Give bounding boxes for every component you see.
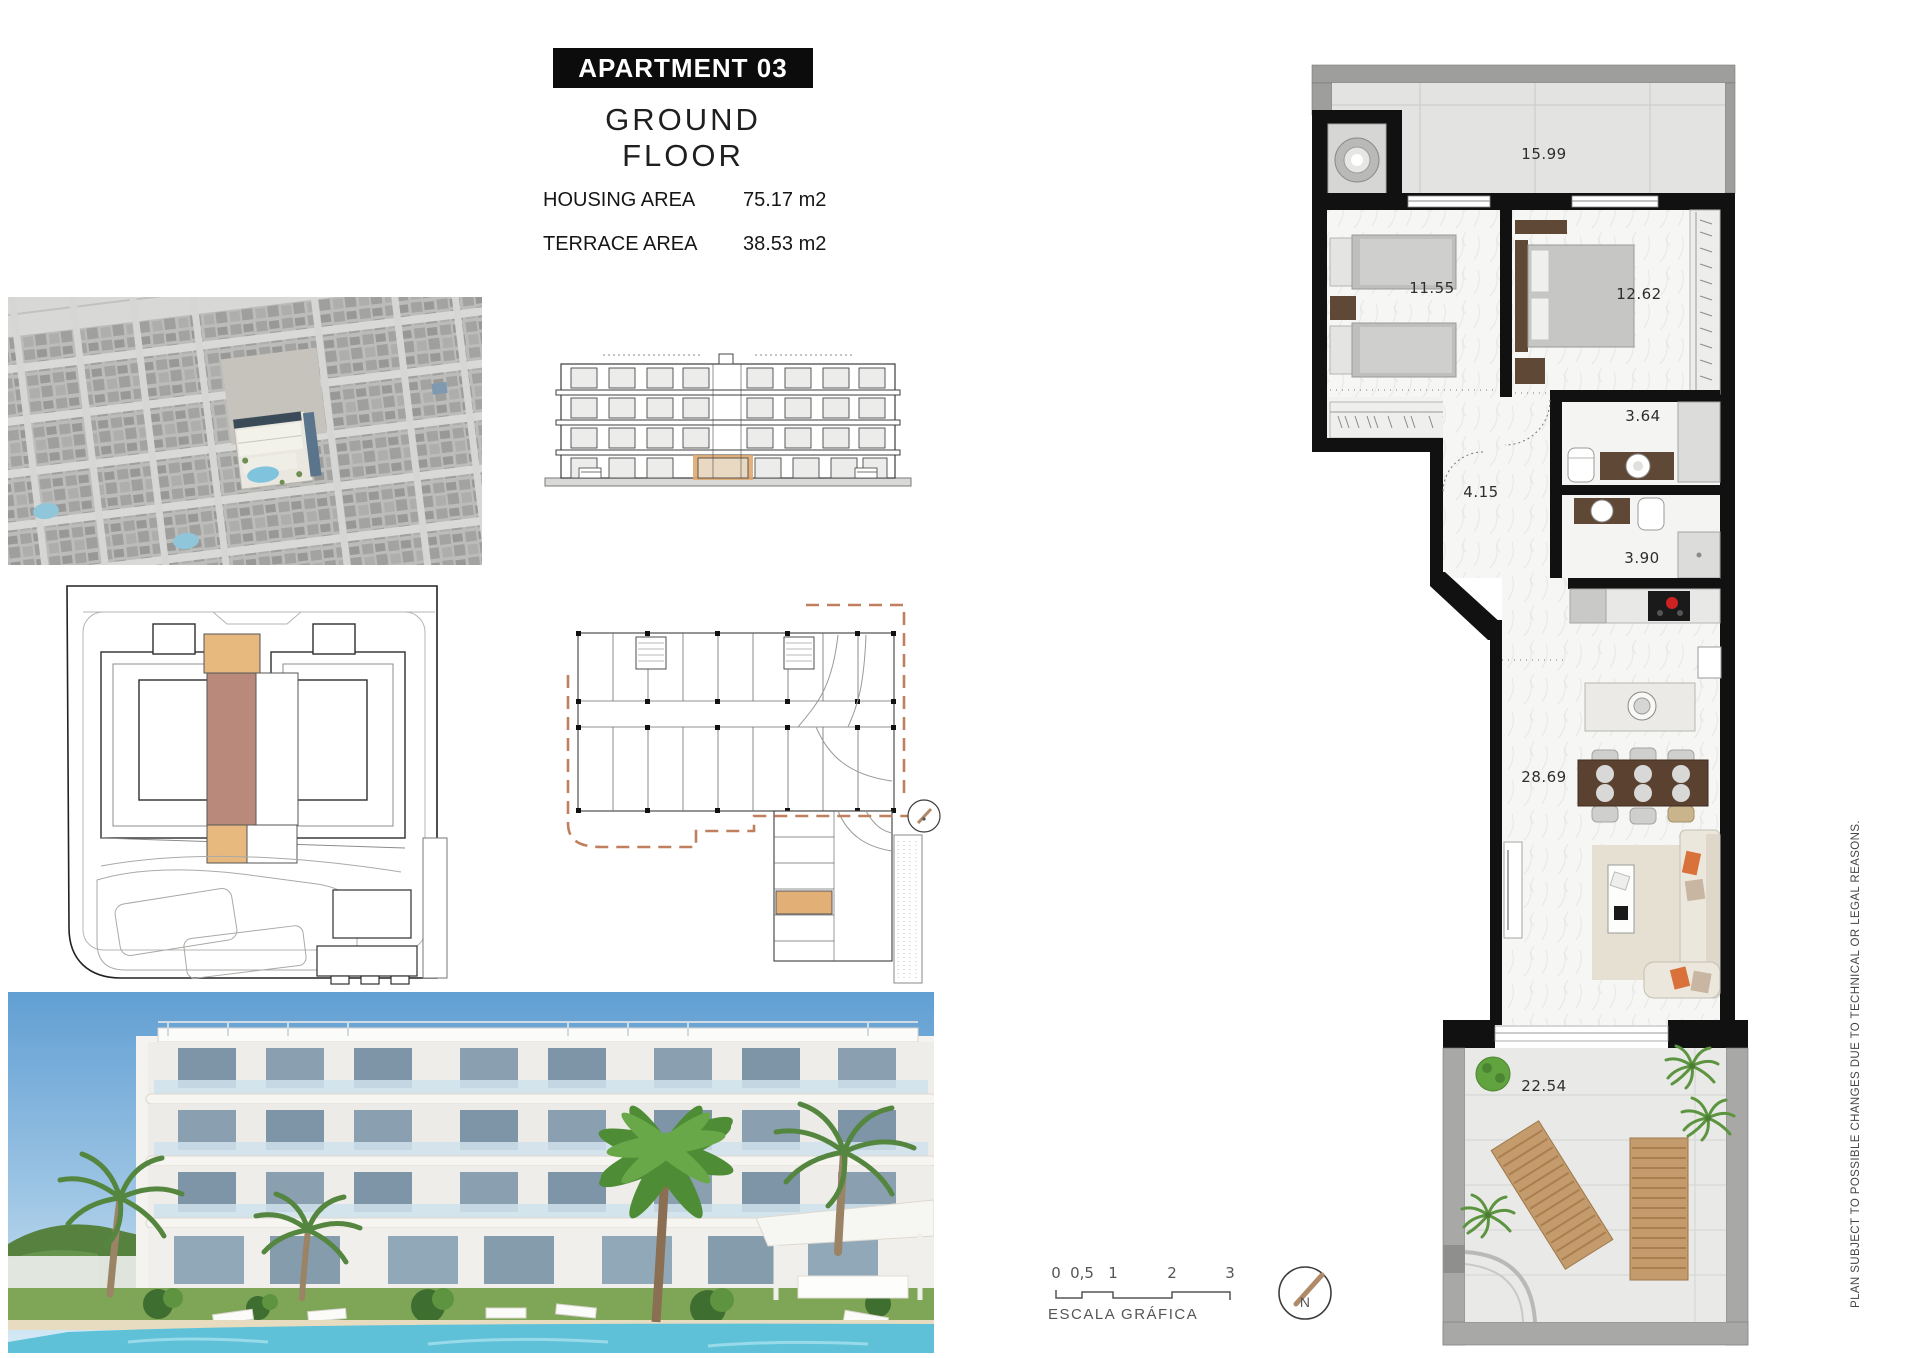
- scale-bar-caption: ESCALA GRÁFICA: [1048, 1306, 1198, 1323]
- room-area-bedroom-master: 12.62: [1616, 285, 1661, 303]
- floor-plan-graphic: [1300, 60, 1750, 1350]
- site-block-plan: [55, 580, 450, 985]
- floor-plan: 15.99 11.55 12.62 3.64 4.15 3.90 28.69 2…: [1300, 60, 1750, 1350]
- plan-bathroom-1: [1550, 390, 1720, 492]
- legal-disclaimer: PLAN SUBJECT TO POSSIBLE CHANGES DUE TO …: [1850, 846, 1862, 1308]
- housing-area-value: 75.17 m2: [743, 189, 853, 212]
- building-elevation: [543, 348, 913, 494]
- apartment-title-box: APARTMENT 03: [553, 48, 813, 88]
- room-area-bathroom-2: 3.90: [1624, 549, 1659, 567]
- scale-tick-0: 0: [1051, 1264, 1061, 1282]
- key-plan-graphic: [548, 585, 943, 985]
- room-area-living-kitchen: 28.69: [1521, 768, 1566, 786]
- terrace-area-label: TERRACE AREA: [543, 233, 743, 256]
- site-plan-graphic: [55, 580, 450, 985]
- housing-area-label: HOUSING AREA: [543, 189, 743, 212]
- building-render-photo: [8, 992, 934, 1353]
- room-area-terrace-main: 22.54: [1521, 1077, 1566, 1095]
- room-area-bedroom-twin: 11.55: [1409, 279, 1454, 297]
- north-label: N: [1300, 1294, 1310, 1310]
- scale-tick-05: 0,5: [1070, 1264, 1094, 1282]
- scale-tick-3: 3: [1225, 1264, 1235, 1282]
- room-area-bathroom-1: 3.64: [1625, 407, 1660, 425]
- scale-tick-2: 2: [1167, 1264, 1177, 1282]
- floor-subtitle: GROUND FLOOR: [553, 102, 813, 174]
- room-area-terrace-top: 15.99: [1521, 145, 1566, 163]
- north-compass: N: [1276, 1264, 1336, 1324]
- plan-terrace-top: [1312, 65, 1735, 210]
- plan-living-kitchen: [1490, 578, 1721, 1025]
- housing-area-row: HOUSING AREA 75.17 m2: [543, 189, 853, 212]
- room-area-hall: 4.15: [1463, 483, 1498, 501]
- graphic-scale-bar: 0 0,5 1 2 3 ESCALA GRÁFICA: [1048, 1264, 1248, 1330]
- scale-tick-1: 1: [1108, 1264, 1118, 1282]
- scale-bar-steps: [1048, 1284, 1248, 1304]
- map-site-highlight: [233, 410, 322, 490]
- garage-key-plan: [548, 585, 943, 985]
- plan-terrace-main: [1443, 1046, 1748, 1345]
- elevation-graphic: [543, 348, 913, 494]
- aerial-map-graphic: [8, 297, 482, 565]
- aerial-site-map: [8, 297, 482, 565]
- key-plan-parking-highlight: [776, 891, 832, 914]
- apartment-title: APARTMENT 03: [578, 53, 787, 84]
- render-photo-graphic: [8, 992, 934, 1353]
- terrace-area-value: 38.53 m2: [743, 233, 853, 256]
- terrace-area-row: TERRACE AREA 38.53 m2: [543, 233, 853, 256]
